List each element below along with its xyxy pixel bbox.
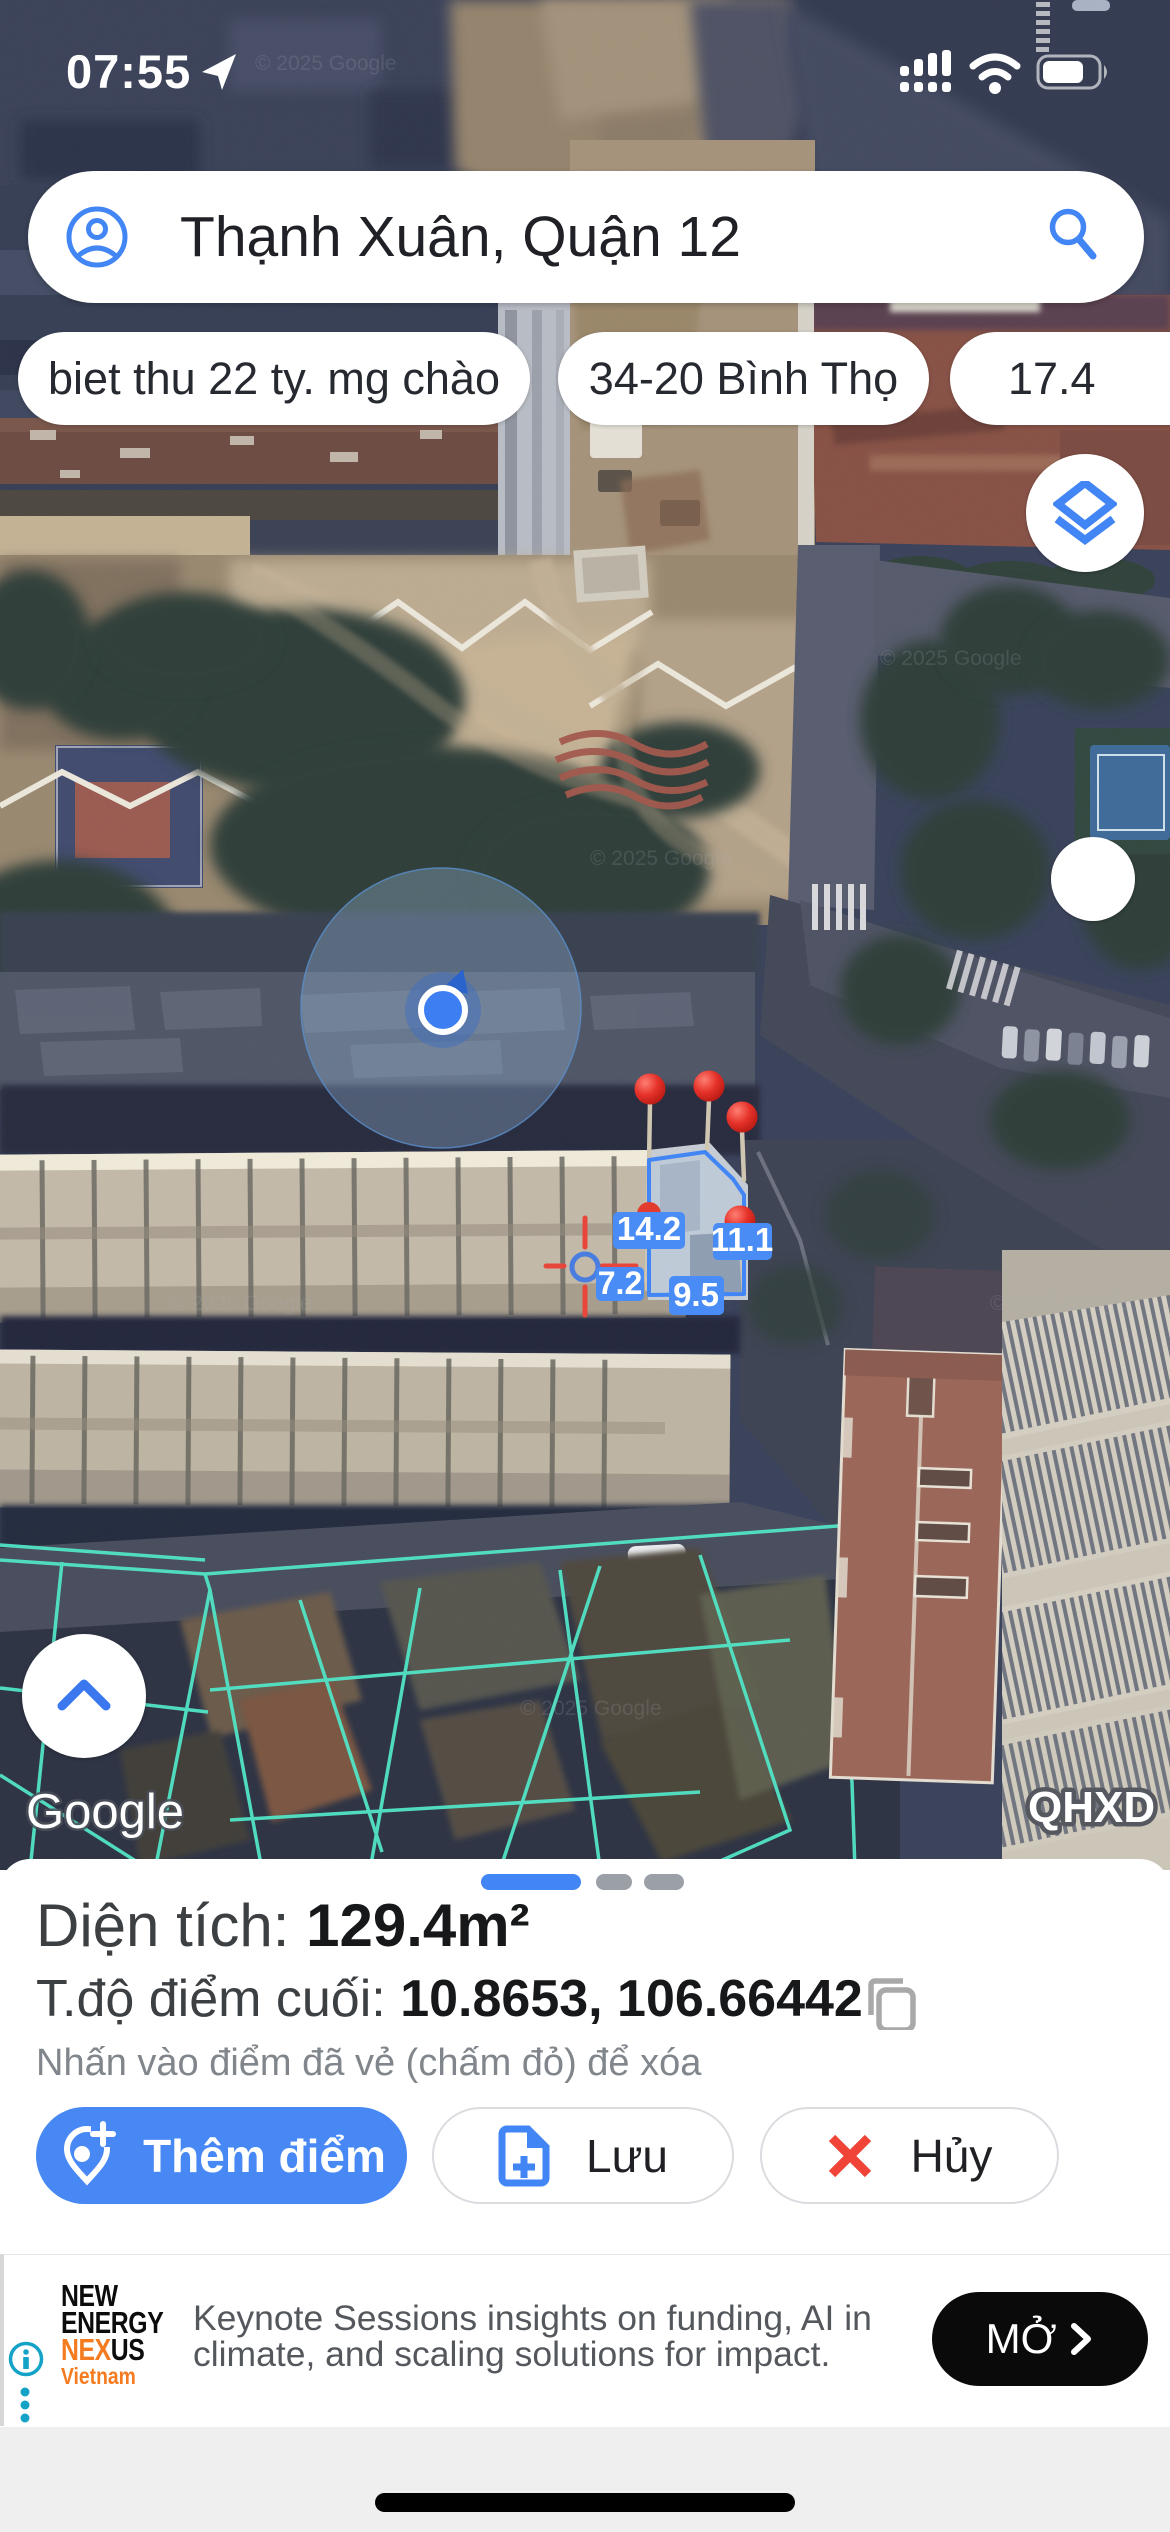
svg-text:QHXD: QHXD — [1028, 1783, 1155, 1832]
svg-text:9.5: 9.5 — [673, 1276, 719, 1313]
svg-text:© 2025 Google: © 2025 Google — [880, 647, 1022, 670]
svg-text:7.2: 7.2 — [598, 1265, 642, 1301]
svg-text:Google: Google — [26, 1785, 184, 1839]
svg-text:© 2025 Google: © 2025 Google — [590, 847, 732, 870]
svg-text:© 2025 Google: © 2025 Google — [990, 1292, 1132, 1315]
svg-text:14.2: 14.2 — [617, 1210, 681, 1247]
svg-text:11.1: 11.1 — [711, 1221, 773, 1258]
svg-text:© 2025 Google: © 2025 Google — [520, 1697, 662, 1720]
svg-text:© 2025 Google: © 2025 Google — [255, 52, 397, 75]
svg-text:© 2025 Google: © 2025 Google — [170, 1292, 312, 1315]
